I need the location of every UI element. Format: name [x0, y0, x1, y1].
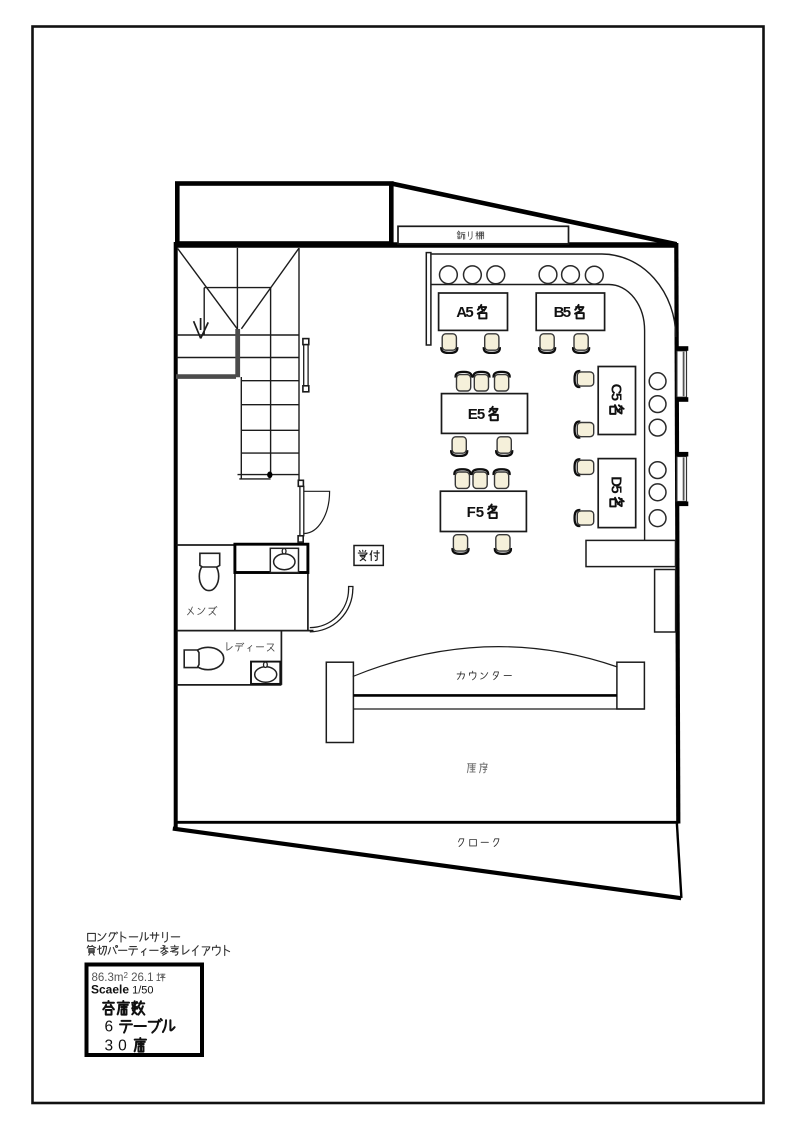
svg-text:5: 5	[465, 304, 473, 321]
svg-text:5: 5	[477, 406, 485, 423]
svg-text:5: 5	[476, 504, 484, 521]
svg-text:5: 5	[608, 485, 625, 493]
svg-text:F: F	[467, 504, 476, 521]
svg-text:Scaele 1/50: Scaele 1/50	[91, 983, 154, 997]
svg-text:6: 6	[105, 1019, 114, 1036]
svg-text:30: 30	[105, 1038, 132, 1055]
svg-text:5: 5	[608, 393, 625, 401]
svg-text:5: 5	[563, 304, 571, 321]
